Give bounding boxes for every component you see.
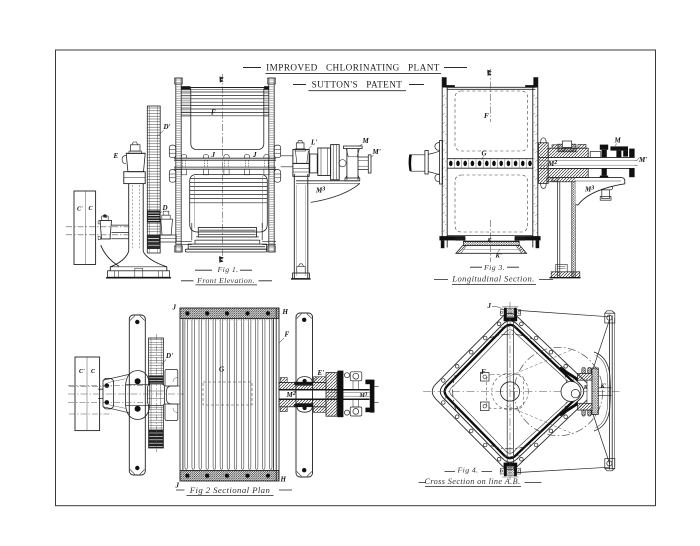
svg-text:M': M'	[372, 148, 381, 156]
svg-text:C': C'	[77, 207, 83, 213]
svg-text:H: H	[282, 308, 289, 316]
svg-text:Cross Section on line A.B.: Cross Section on line A.B.	[425, 477, 521, 486]
svg-text:Fig 1.: Fig 1.	[216, 265, 238, 274]
svg-text:D': D'	[163, 123, 171, 131]
svg-text:Fig 4.: Fig 4.	[456, 466, 478, 475]
svg-text:C': C'	[79, 369, 85, 375]
svg-text:M: M	[614, 137, 622, 145]
svg-text:F: F	[481, 368, 486, 376]
svg-text:F: F	[484, 112, 489, 120]
svg-text:G: G	[219, 365, 225, 374]
svg-text:D: D	[162, 204, 168, 212]
svg-text:IMPROVED CHLORINATING PLANT: IMPROVED CHLORINATING PLANT	[266, 63, 440, 73]
svg-text:SUTTON'S PATENT: SUTTON'S PATENT	[312, 80, 403, 90]
svg-text:E: E	[113, 152, 119, 160]
svg-text:H: H	[280, 476, 287, 484]
svg-text:K': K'	[600, 384, 607, 390]
svg-text:J: J	[172, 304, 177, 312]
svg-text:F: F	[211, 109, 216, 117]
svg-text:J: J	[211, 151, 216, 159]
svg-text:G: G	[482, 149, 487, 157]
svg-text:Front Elevation.: Front Elevation.	[196, 276, 255, 285]
svg-text:L': L'	[310, 139, 317, 147]
svg-text:K': K'	[495, 253, 502, 260]
svg-text:J: J	[252, 151, 257, 159]
svg-text:J: J	[175, 482, 180, 490]
svg-text:M: M	[362, 137, 370, 145]
svg-text:Fig 3.: Fig 3.	[483, 263, 505, 272]
svg-text:F: F	[285, 331, 290, 339]
svg-text:Fig 2 Sectional Plan: Fig 2 Sectional Plan	[189, 485, 271, 495]
svg-text:Longitudinal Section.: Longitudinal Section.	[451, 274, 534, 284]
svg-text:D': D'	[165, 352, 173, 360]
svg-text:J: J	[487, 302, 492, 310]
svg-text:E': E'	[317, 369, 325, 377]
